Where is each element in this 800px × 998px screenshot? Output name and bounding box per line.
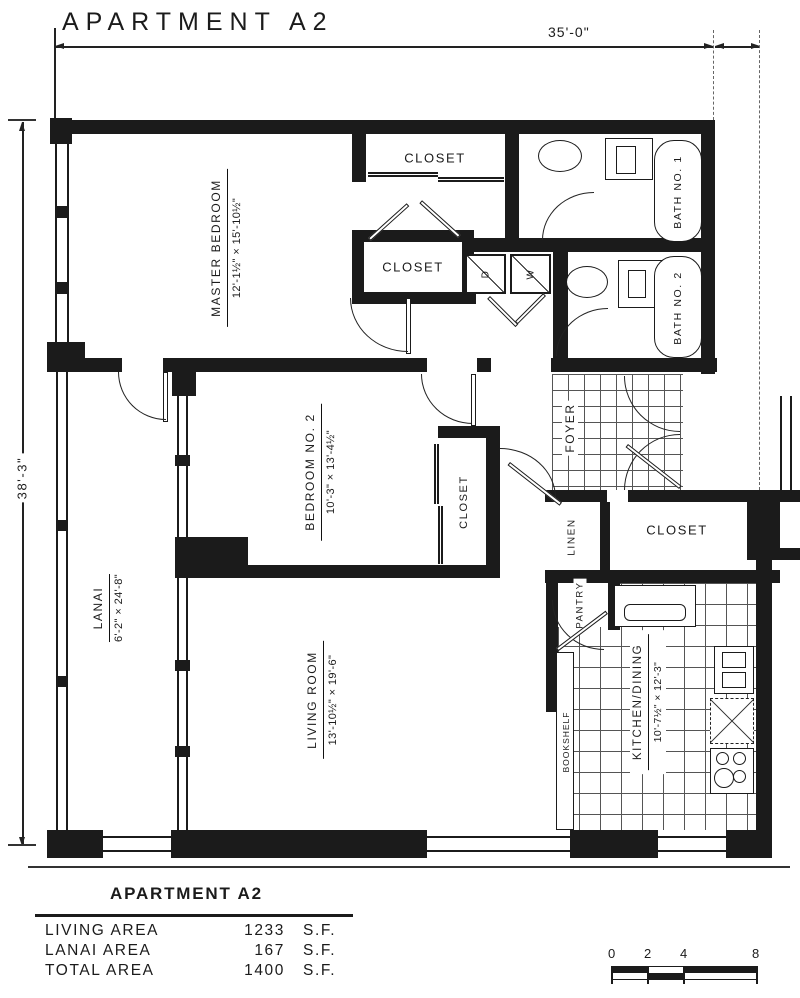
vanity-sink-bath2 [628, 270, 646, 298]
extension-tick [8, 119, 36, 121]
scale-tick [647, 966, 649, 984]
window-bedroom2 [177, 396, 188, 537]
window-living-room [177, 578, 188, 830]
room-label-living-room: LIVING ROOM 13'-10½" × 19'-6" [303, 637, 341, 763]
table-row-unit: S.F. [303, 942, 336, 960]
room-size: 12'-1½" × 15'-10½" [231, 169, 243, 327]
door-arc [421, 374, 473, 424]
table-row-unit: S.F. [303, 962, 336, 980]
wall-bottom [171, 830, 427, 858]
scale-tick [683, 966, 685, 984]
wall-block [175, 537, 248, 578]
room-label-master-bedroom: MASTER BEDROOM 12'-1½" × 15'-10½" [207, 165, 245, 331]
window-bottom [658, 836, 726, 852]
room-name: LANAI [91, 574, 110, 642]
closet-label: CLOSET [404, 151, 466, 166]
room-name: BEDROOM NO. 2 [303, 403, 322, 540]
oven-element [722, 672, 746, 688]
wall-segment [352, 134, 366, 182]
dimension-arrow-icon [19, 122, 25, 131]
wall-corner [726, 830, 772, 858]
room-size: 13'-10½" × 19'-6" [327, 641, 339, 759]
bifold-door [487, 296, 518, 327]
washer-label: W [525, 265, 538, 282]
sliding-door [438, 177, 504, 182]
bath2-label: BATH NO. 2 [671, 268, 685, 348]
window-mullion [175, 455, 190, 466]
toilet-bath1 [538, 140, 582, 172]
bifold-door [515, 293, 546, 324]
extension-line [54, 28, 56, 118]
wall-kitchen-right [756, 560, 772, 830]
linen-label: LINEN [566, 515, 579, 558]
wall-top [58, 120, 715, 134]
dimension-height-label: 38'-3" [14, 454, 31, 503]
wall-stub [780, 548, 800, 560]
stove-burner [716, 752, 729, 765]
room-size: 10'-7½" × 12'-3" [652, 634, 664, 770]
table-row-label: LANAI AREA [45, 942, 151, 960]
dryer-label: D [480, 267, 493, 282]
toilet-bath2 [566, 266, 608, 298]
wall-bath1-left [505, 134, 519, 238]
dimension-arrow-icon [55, 43, 64, 49]
dimension-arrow-icon [715, 43, 724, 49]
sliding-door [368, 172, 438, 177]
wall-corner [47, 830, 103, 858]
room-label-lanai: LANAI 6'-2" × 24'-8" [91, 574, 125, 642]
closet-label: CLOSET [457, 472, 471, 532]
oven-element [722, 652, 746, 668]
room-name: KITCHEN/DINING [632, 634, 649, 770]
table-row-unit: S.F. [303, 922, 336, 940]
scale-bar [612, 966, 758, 980]
stove-burner [714, 768, 734, 788]
sliding-door [438, 506, 443, 564]
wall-bedroom2-bottom [248, 565, 490, 578]
table-row-value: 1400 [195, 962, 285, 980]
floor-plan-sheet: APARTMENT A2 35'-0" 38'-3" CLO [0, 0, 800, 998]
centerline-dashed [759, 30, 760, 490]
bath1-label: BATH NO. 1 [671, 152, 685, 232]
closet-label: CLOSET [646, 523, 708, 538]
table-row-value: 1233 [195, 922, 285, 940]
kitchen-sink-bowl [624, 604, 686, 621]
sliding-door [434, 444, 439, 504]
window-mullion [175, 660, 190, 671]
refrigerator [710, 698, 754, 744]
door-leaf [471, 374, 476, 426]
wall-segment [163, 358, 427, 372]
door-arc [350, 298, 408, 352]
room-name: MASTER BEDROOM [209, 169, 228, 327]
window-mullion [56, 520, 68, 531]
table-row-value: 167 [195, 942, 285, 960]
wall-foyer-top [551, 358, 717, 372]
dimension-width-label: 35'-0" [548, 24, 590, 40]
stove-burner [733, 770, 746, 783]
dimension-arrow-icon [704, 43, 713, 49]
wall-hinge-block [477, 358, 491, 372]
scale-tick-label: 8 [752, 946, 759, 961]
wall-segment [628, 490, 683, 502]
wall-segment [683, 490, 800, 502]
wall-segment [47, 358, 122, 372]
window-master-bedroom [55, 144, 69, 342]
window-mullion [55, 282, 69, 294]
room-size: 6'-2" × 24'-8" [113, 574, 125, 642]
closet-label: CLOSET [382, 260, 444, 275]
corridor-wall [780, 396, 792, 494]
door-arc [118, 372, 166, 420]
table-row-label: TOTAL AREA [45, 962, 155, 980]
page-title: APARTMENT A2 [62, 8, 334, 37]
bookshelf-label: BOOKSHELF [560, 709, 572, 776]
scale-tick [611, 966, 613, 984]
vanity-sink-bath1 [616, 146, 636, 174]
window-bottom [427, 836, 570, 852]
window-mullion [55, 206, 69, 218]
scale-tick-label: 4 [680, 946, 687, 961]
table-rule [35, 914, 353, 917]
wall-bottom [570, 830, 658, 858]
room-label-kitchen-dining: KITCHEN/DINING 10'-7½" × 12'-3" [630, 630, 666, 774]
table-row-label: LIVING AREA [45, 922, 159, 940]
extension-tick [8, 844, 36, 846]
scale-segment [649, 973, 685, 979]
room-label-bedroom-2: BEDROOM NO. 2 10'-3" × 13'-4½" [301, 399, 339, 544]
extension-line-dashed [713, 30, 714, 120]
wall-closet-right [486, 426, 500, 578]
room-name: LIVING ROOM [305, 641, 324, 759]
scale-tick [756, 966, 758, 984]
scale-segment [685, 967, 757, 973]
room-size: 10'-3" × 13'-4½" [325, 403, 337, 540]
door-arc [542, 192, 594, 240]
foyer-label: FOYER [562, 400, 578, 455]
window-mullion [56, 676, 68, 687]
lanai-rail [56, 372, 68, 832]
scale-segment [613, 967, 649, 973]
wall-block [172, 372, 196, 396]
dimension-line-top [55, 46, 713, 48]
ground-line [28, 866, 790, 868]
scale-tick-label: 0 [608, 946, 615, 961]
wall-corner-top-left [50, 118, 72, 144]
wall-closet-column [747, 502, 780, 560]
wall-linen-divider [600, 502, 610, 572]
area-table-title: APARTMENT A2 [110, 884, 263, 904]
scale-tick-label: 2 [644, 946, 651, 961]
window-bottom [103, 836, 171, 852]
stove-burner [733, 752, 746, 765]
window-mullion [175, 746, 190, 757]
